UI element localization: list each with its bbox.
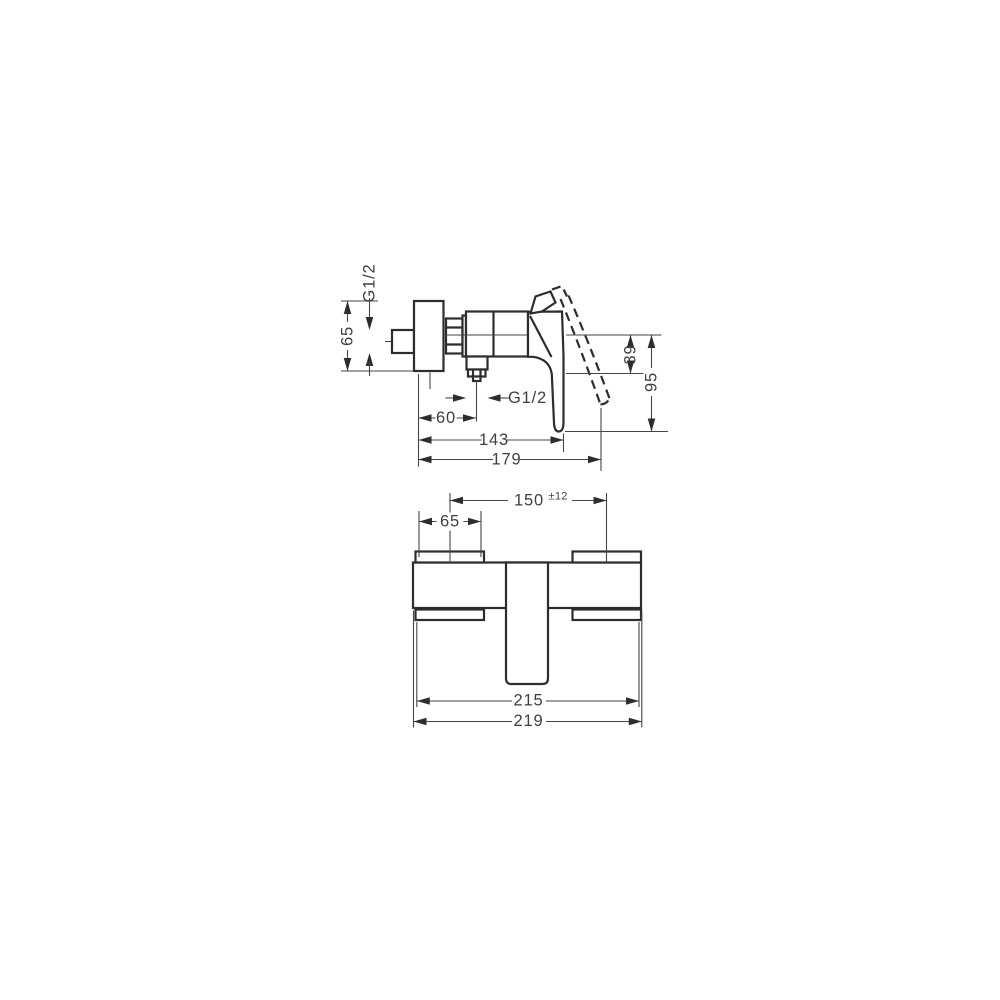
outlet-body: [467, 357, 488, 370]
dimension-95: 95: [643, 335, 661, 432]
handle-drop-label: 95: [643, 372, 661, 392]
escutcheon: [414, 301, 444, 371]
outlet-drop-label: 39: [622, 345, 640, 365]
handle-open-tip-dash: [601, 399, 610, 405]
arrowhead-right: [626, 697, 639, 705]
dimension-65-front: 65: [419, 513, 481, 531]
arrowhead-left: [419, 518, 432, 526]
dimension-179: 179: [419, 451, 602, 469]
handle-open-edge-dash: [561, 299, 601, 405]
technical-drawing-page: G1/2 65 39 95: [0, 0, 1000, 1000]
valve-body: [466, 312, 528, 357]
right-port-flange-bottom: [573, 610, 642, 621]
dimension-150: 150 ±12: [450, 491, 607, 510]
arrowhead-left: [414, 718, 427, 726]
handle-open-edge-dash: [569, 296, 610, 399]
wall-fitting-body: [392, 330, 414, 353]
arrowhead-up: [648, 335, 656, 348]
arrowhead-left: [419, 456, 432, 464]
handle: [528, 292, 564, 432]
shower-mixer-dimension-drawing: G1/2 65 39 95: [0, 0, 1000, 1000]
arrowhead-left: [488, 394, 501, 402]
outlet-thread-label: G1/2: [508, 389, 547, 407]
outlet-offset-label: 60: [436, 409, 456, 427]
overall-width-label: 219: [514, 712, 544, 730]
arrowhead-right: [588, 456, 601, 464]
handle-lever-closed: [528, 312, 564, 432]
outlet-thread-stub: [473, 377, 481, 382]
handle-end-tab: [531, 292, 556, 314]
valve-body-outline: [466, 312, 528, 357]
wall-fitting: [385, 330, 414, 353]
dimension-219: 219: [414, 712, 642, 730]
arrowhead-right: [551, 436, 564, 444]
connection-tolerance-label: ±12: [549, 491, 568, 503]
union-nut: [446, 316, 466, 357]
dimension-215: 215: [417, 692, 639, 710]
arrowhead-left: [419, 414, 432, 422]
left-port-flange-bottom: [416, 610, 485, 621]
dimension-143: 143: [419, 431, 564, 449]
overall-depth-label: 179: [492, 451, 522, 469]
dimension-inlet-thread: G1/2: [361, 264, 379, 376]
body-width-label: 215: [514, 692, 544, 710]
arrowhead-down: [648, 419, 656, 432]
union-nut-body: [446, 319, 463, 354]
side-view: G1/2 65 39 95: [339, 264, 669, 471]
handle-reach-label: 143: [479, 431, 509, 449]
handle-column: [506, 563, 548, 685]
arrowhead-down: [366, 317, 374, 330]
arrowhead-left: [450, 497, 463, 505]
handle-open-tab-dash: [552, 286, 567, 297]
arrowhead-left: [419, 436, 432, 444]
escutcheon-width-label: 65: [440, 513, 460, 531]
dimension-39: 39: [622, 335, 640, 374]
dimension-65-vertical: 65: [339, 301, 357, 371]
arrowhead-up: [344, 301, 352, 314]
connection-spacing-label: 150: [514, 492, 544, 510]
arrowhead-right: [468, 518, 481, 526]
front-view: 150 ±12 65 215 219: [413, 491, 642, 731]
shower-outlet: [467, 357, 488, 382]
arrowhead-down: [344, 358, 352, 371]
arrowhead-left: [417, 697, 430, 705]
dimension-outlet-thread: G1/2: [446, 389, 547, 407]
arrowhead-right: [453, 394, 466, 402]
dimension-60: 60: [419, 409, 477, 427]
arrowhead-right: [463, 414, 476, 422]
inlet-thread-label: G1/2: [361, 264, 379, 303]
arrowhead-right: [629, 718, 642, 726]
escutcheon-height-label: 65: [339, 326, 357, 346]
arrowhead-right: [594, 497, 607, 505]
